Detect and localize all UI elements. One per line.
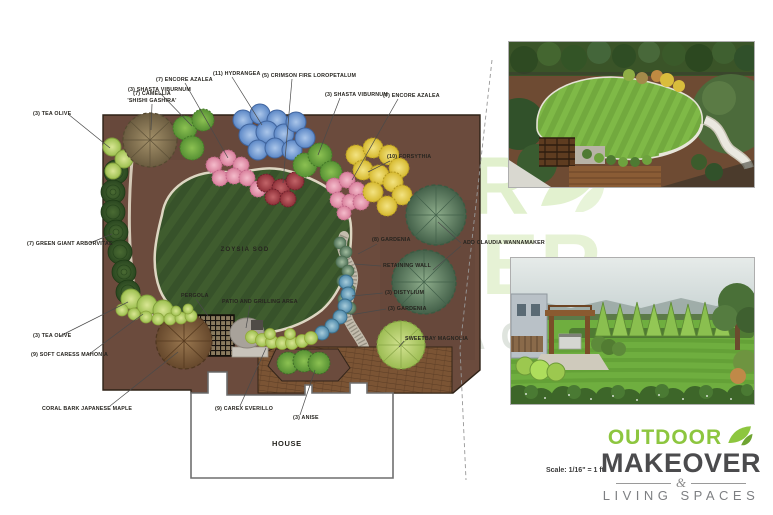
logo-leaf-icon [726,424,754,451]
render-aerial-view [508,41,755,188]
label-zoysia-sod: ZOYSIA SOD [221,247,270,253]
label-mahonia: (9) SOFT CARESS MAHONIA [31,352,108,358]
plant-camellia [123,113,177,167]
logo-divider: & [590,478,772,488]
render-ground-view [510,257,755,405]
aerial-view-image [509,42,754,187]
logo-outdoor-text: OUTDOOR [608,426,722,450]
landscape-design-sheet: OUTDOOR MAKEOVER LIVING SPACES [0,0,773,515]
ground-view-image [511,258,754,404]
label-viburnum-left: (3) SHASTA VIBURNUM [128,87,191,93]
plant-anise-group [277,350,330,374]
label-distylium: (3) DISTYLIUM [385,290,424,296]
label-azalea-right: (7) ENCORE AZALEA [383,93,440,99]
label-patio-grilling: PATIO AND GRILLING AREA [222,299,298,305]
label-tea-olive-bottom: (3) TEA OLIVE [33,333,72,339]
label-tea-olive-top: (3) TEA OLIVE [33,111,72,117]
company-logo: OUTDOOR MAKEOVER & LIVING SPACES [590,424,772,503]
label-azalea-left: (7) ENCORE AZALEA [156,77,213,83]
label-camellia-line2: 'SHISHI GASHIRA' [127,98,176,104]
label-viburnum-right: (3) SHASTA VIBURNUM [325,92,388,98]
label-gardenia-8: (8) GARDENIA [372,237,411,243]
label-retaining-wall: RETAINING WALL [383,263,432,269]
label-pergola: PERGOLA [181,293,209,299]
label-sweetbay-magnolia: SWEETBAY MAGNOLIA [405,336,468,342]
label-gardenia-3: (3) GARDENIA [388,306,427,312]
label-arborvitae: (7) GREEN GIANT ARBORVITAE [27,241,113,247]
logo-living-spaces-text: LIVING SPACES [603,488,760,503]
label-house: HOUSE [272,439,302,448]
label-claudia-wannamaker: ADD CLAUDIA WANNAMAKER [463,240,545,246]
label-carex-everillo: (9) CAREX EVERILLO [215,406,273,412]
label-coral-bark-maple: CORAL BARK JAPANESE MAPLE [42,406,132,412]
label-loropetalum: (5) CRIMSON FIRE LOROPETALUM [262,73,356,79]
logo-ampersand: & [676,478,686,488]
label-forsythia: (10) FORSYTHIA [387,154,431,160]
label-anise: (3) ANISE [293,415,319,421]
label-hydrangea: (11) HYDRANGEA [213,71,261,77]
